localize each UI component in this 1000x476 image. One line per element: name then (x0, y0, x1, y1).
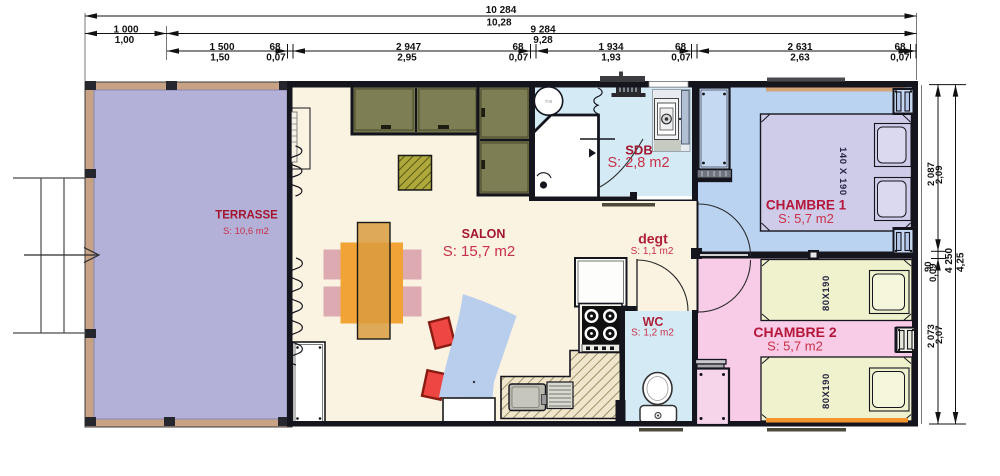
svg-text:2,07: 2,07 (934, 326, 945, 345)
svg-text:9 284: 9 284 (530, 25, 555, 36)
svg-text:2,95: 2,95 (397, 53, 417, 64)
svg-text:2 631: 2 631 (787, 42, 812, 53)
svg-text:4,25: 4,25 (956, 252, 967, 272)
svg-text:10,28: 10,28 (486, 18, 511, 29)
svg-text:80X190: 80X190 (821, 373, 832, 409)
svg-text:68: 68 (675, 42, 687, 53)
svg-text:S: 15,7 m2: S: 15,7 m2 (443, 243, 516, 260)
svg-text:2,63: 2,63 (790, 53, 810, 64)
svg-text:1,00: 1,00 (115, 35, 135, 46)
svg-text:1 500: 1 500 (209, 42, 234, 53)
svg-text:S: 10,6 m2: S: 10,6 m2 (223, 226, 269, 237)
svg-text:708: 708 (545, 99, 553, 104)
svg-text:S: 5,7 m2: S: 5,7 m2 (767, 339, 823, 354)
svg-text:S: 5,7 m2: S: 5,7 m2 (778, 211, 834, 226)
svg-text:1,93: 1,93 (601, 53, 621, 64)
svg-text:S: 1,2 m2: S: 1,2 m2 (631, 328, 674, 339)
svg-text:0,07: 0,07 (266, 53, 286, 64)
svg-text:4 250: 4 250 (944, 248, 955, 273)
svg-text:0,09: 0,09 (928, 264, 939, 283)
svg-text:0,07: 0,07 (509, 53, 529, 64)
svg-text:68: 68 (269, 42, 281, 53)
svg-text:10 284: 10 284 (486, 5, 517, 16)
svg-text:2,09: 2,09 (934, 166, 945, 185)
svg-text:0,07: 0,07 (890, 53, 910, 64)
svg-text:TERRASSE: TERRASSE (215, 210, 278, 222)
svg-text:1 934: 1 934 (598, 42, 623, 53)
svg-text:1 000: 1 000 (113, 25, 138, 36)
svg-text:SALON: SALON (462, 227, 506, 241)
svg-text:degt: degt (638, 231, 668, 247)
svg-text:140 X 190: 140 X 190 (837, 147, 848, 196)
svg-text:68: 68 (512, 42, 524, 53)
svg-text:0,07: 0,07 (671, 53, 691, 64)
svg-text:S: 1,1 m2: S: 1,1 m2 (631, 246, 674, 257)
svg-text:1,50: 1,50 (210, 53, 230, 64)
svg-text:2 947: 2 947 (396, 42, 421, 53)
svg-text:80X190: 80X190 (821, 275, 832, 311)
svg-text:68: 68 (894, 42, 906, 53)
svg-text:S: 2,8 m2: S: 2,8 m2 (607, 155, 669, 171)
